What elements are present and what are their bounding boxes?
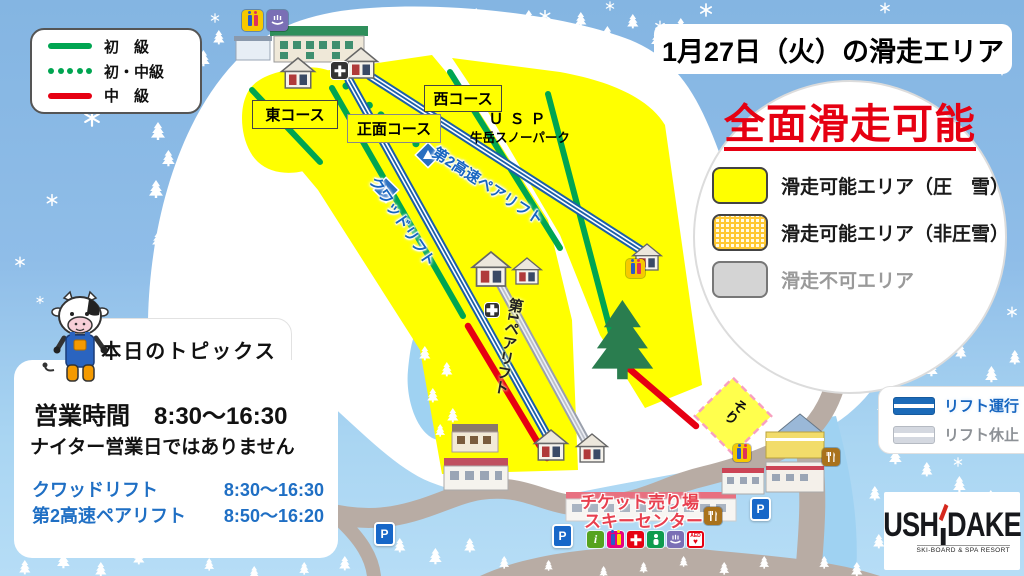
quad-lift-hours-row: クワッドリフト 8:30～16:30 bbox=[32, 476, 324, 502]
lift-name: 第2高速ペアリフト bbox=[32, 502, 186, 528]
lift-stopped-label: リフト休止 bbox=[944, 424, 1019, 445]
intermediate-line-swatch bbox=[48, 93, 92, 99]
resort-logo: USH DAKE SKI-BOARD & SPA RESORT bbox=[884, 492, 1020, 570]
locker-icon bbox=[647, 531, 664, 548]
business-hours: 営業時間 8:30～16:30 bbox=[34, 396, 287, 431]
lift-stopped-row: リフト休止 bbox=[893, 424, 1024, 445]
course-legend: 初 級 初・中級 中 級 bbox=[30, 28, 202, 114]
lift-time: 8:50～16:20 bbox=[224, 502, 324, 528]
topics-box: 営業時間 8:30～16:30 ナイター営業日ではありません クワッドリフト 8… bbox=[14, 360, 338, 558]
restroom-icon bbox=[242, 10, 263, 31]
restroom-icon bbox=[607, 531, 624, 548]
snowpark-label-usp: ＵＳＰ bbox=[460, 108, 580, 129]
closed-area-swatch bbox=[712, 261, 768, 298]
first-aid-icon bbox=[485, 303, 499, 317]
status-label: 滑走可能エリア（非圧雪） bbox=[781, 219, 1009, 246]
ski-center-label: スキーセンター bbox=[584, 507, 703, 532]
logo-subtitle: SKI-BOARD & SPA RESORT bbox=[917, 545, 1010, 554]
status-headline: 全面滑走可能 bbox=[695, 102, 1005, 151]
status-row-closed: 滑走不可エリア bbox=[712, 261, 914, 298]
status-label: 滑走不可エリア bbox=[781, 266, 914, 293]
restroom-icon bbox=[733, 444, 751, 462]
onsen-icon bbox=[267, 10, 288, 31]
course-label-front: 正面コース bbox=[347, 114, 441, 143]
status-row-ungroomed: 滑走可能エリア（非圧雪） bbox=[712, 214, 1009, 251]
lift-status-legend: リフト運行 リフト休止 bbox=[878, 386, 1024, 454]
first-aid-icon bbox=[627, 531, 644, 548]
restroom-icon bbox=[626, 259, 645, 278]
legend-label: 初・中級 bbox=[104, 61, 164, 82]
logo-stylized-i bbox=[939, 508, 946, 542]
lift-running-swatch bbox=[893, 397, 935, 415]
cow-mascot bbox=[40, 290, 122, 388]
aed-icon: AED♥ bbox=[687, 531, 704, 548]
legend-row-beginner-intermediate: 初・中級 bbox=[32, 61, 200, 82]
parking-sign: P bbox=[374, 522, 395, 546]
legend-label: 中 級 bbox=[104, 85, 149, 106]
facility-icon-row: i AED♥ bbox=[587, 531, 704, 548]
lift-stopped-swatch bbox=[893, 426, 935, 444]
parking-sign: P bbox=[750, 497, 771, 521]
legend-label: 初 級 bbox=[104, 36, 149, 57]
logo-wordmark: USH DAKE bbox=[883, 508, 1021, 542]
restaurant-icon bbox=[822, 448, 840, 466]
legend-row-beginner: 初 級 bbox=[32, 36, 200, 57]
status-row-groomed: 滑走可能エリア（圧 雪） bbox=[712, 167, 1009, 204]
snowpark-label-name: 牛岳スノーパーク bbox=[455, 127, 585, 146]
beginner-line-swatch bbox=[48, 43, 92, 49]
parking-sign: P bbox=[552, 524, 573, 548]
pair2-lift-hours-row: 第2高速ペアリフト 8:50～16:20 bbox=[32, 502, 324, 528]
lift-running-row: リフト運行 bbox=[893, 395, 1024, 416]
status-label: 滑走可能エリア（圧 雪） bbox=[781, 172, 1009, 199]
beginner-intermediate-dotted-swatch bbox=[48, 68, 92, 74]
date-header-banner: 1月27日（火）の滑走エリア bbox=[654, 24, 1012, 74]
restaurant-icon bbox=[704, 507, 722, 525]
first-aid-icon bbox=[331, 62, 348, 79]
legend-row-intermediate: 中 級 bbox=[32, 85, 200, 106]
night-ski-note: ナイター営業日ではありません bbox=[30, 432, 295, 459]
trail-map-poster: P P P 東コース 正面コース 西コース ＵＳＰ 牛岳スノーパーク 第2高速ペ… bbox=[0, 0, 1024, 576]
lift-name: クワッドリフト bbox=[32, 476, 158, 502]
status-circle: 全面滑走可能 滑走可能エリア（圧 雪） 滑走可能エリア（非圧雪） 滑走不可エリア bbox=[693, 80, 1007, 394]
groomed-area-swatch bbox=[712, 167, 768, 204]
info-icon: i bbox=[587, 531, 604, 548]
lift-running-label: リフト運行 bbox=[944, 395, 1019, 416]
lift-time: 8:30～16:30 bbox=[224, 476, 324, 502]
ungroomed-area-swatch bbox=[712, 214, 768, 251]
bath-icon bbox=[667, 531, 684, 548]
course-label-east: 東コース bbox=[252, 100, 338, 129]
